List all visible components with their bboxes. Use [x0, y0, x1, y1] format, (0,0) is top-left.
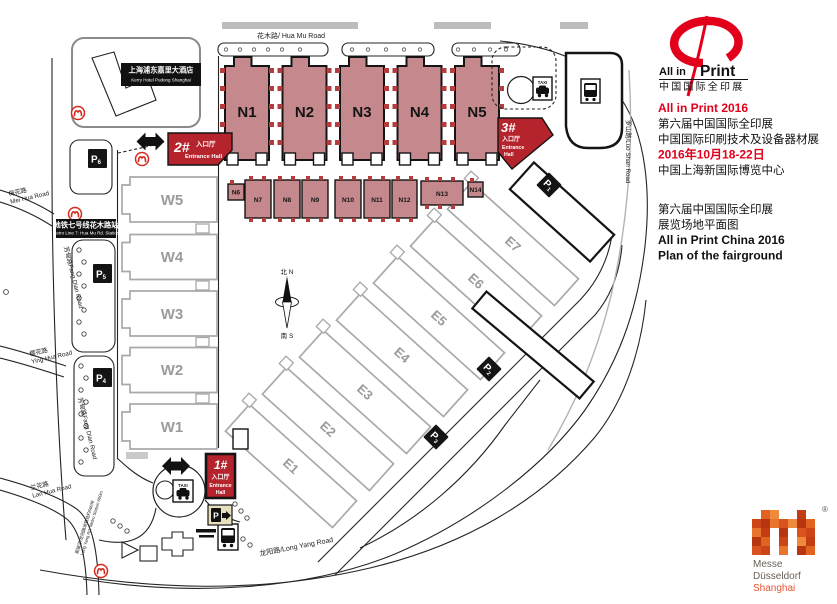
road-mei-hua-2 [0, 202, 52, 226]
label-mei-hua-road: 梅花路 Mei Hua Road [8, 181, 51, 206]
event-info: All in Print 2016 第六届中国国际全印展 中国国际印刷技术及设备… [658, 101, 819, 177]
entrance-3-en2: Hall [504, 152, 514, 158]
right-panel: All in Print 中国国际全印展 All in Print 2016 第… [658, 16, 828, 594]
southwest-buildings [122, 532, 193, 561]
road-plaza-link-1 [117, 458, 153, 483]
parking-sign-p: P [213, 511, 219, 521]
hall-n1-label: N1 [237, 104, 256, 121]
bus-bay [218, 43, 328, 56]
hall-n3: N3 [338, 57, 387, 165]
w1-service-pad [126, 452, 148, 459]
hall-w2-label: W2 [161, 362, 184, 379]
event-title-en: All in Print 2016 [658, 101, 748, 115]
event-title-cn2: 中国国际印刷技术及设备器材展 [658, 132, 819, 146]
plan-title-cn2: 展览场地平面图 [658, 218, 739, 232]
plaza-inner-circle [156, 481, 174, 499]
hall-w5: W5 [122, 177, 217, 222]
entrance-3-en1: Entrance [502, 145, 524, 151]
road-median-bar [560, 22, 588, 29]
hall-n11-label: N11 [371, 197, 383, 204]
taxi-label: TAXI [178, 483, 187, 488]
hotel-name-en: Kerry Hotel Pudong Shanghai [131, 78, 191, 83]
hall-w1: W1 [122, 404, 217, 449]
bus-icon-south [196, 524, 238, 550]
compass-needle-south [283, 302, 292, 328]
w-hall-connector [196, 224, 209, 233]
hall-n8-label: N8 [283, 197, 292, 204]
compass: 北 N 南 S [276, 268, 299, 340]
messe-line2: Düsseldorf [753, 571, 801, 582]
triangle-building [122, 542, 138, 558]
road-median-bar [434, 22, 491, 29]
taxi-icon-northeast: TAXI [533, 77, 552, 100]
registered-mark: ® [822, 505, 828, 514]
all-in-print-logo: All in Print 中国国际全印展 [659, 16, 748, 96]
gate-booth [233, 429, 248, 449]
entrance-1: 1# 入口厅 Entrance Hall [206, 454, 235, 498]
hall-n2-label: N2 [295, 104, 314, 121]
parking-p5: P5 [93, 264, 112, 283]
messe-line1: Messe [753, 559, 783, 570]
hotel-block: 上海浦东嘉里大酒店 Kerry Hotel Pudong Shanghai [72, 38, 201, 127]
label-hua-mu-road: 花木路/ Hua Mu Road [257, 31, 325, 40]
hall-n5: N5 [453, 57, 502, 165]
transit-note: 距磁浮/龙阳路地铁站约600米 Long Yang Rd. Metro Stat… [73, 488, 104, 556]
hall-n2: N2 [280, 57, 329, 165]
label-fang-dian-road-1: 芳甸路Fang Dian Road [62, 246, 85, 310]
road-median-bar [222, 22, 358, 29]
road-lan-hua-2 [0, 490, 87, 595]
entrance-1-en2: Hall [216, 490, 226, 496]
hall-n9-label: N9 [311, 197, 320, 204]
hall-w3-label: W3 [161, 306, 184, 323]
logo-text-cn: 中国国际全印展 [659, 80, 744, 93]
entrance-1-en1: Entrance [209, 483, 231, 489]
hall-w4-label: W4 [161, 249, 184, 266]
label-ying-hua-road: 樱花路 Ying Hua Road [29, 341, 74, 366]
w-halls: W5 W4 W3 W2 W1 [122, 177, 217, 459]
metro-icon-longyang [95, 565, 108, 578]
label-luo-shan-road: 罗山路/Luo Shan Road [624, 120, 632, 184]
small-building [140, 546, 157, 561]
metro7-cn: 地铁七号线花木路站 [54, 221, 120, 230]
bus-platform [199, 535, 214, 538]
hall-n3-label: N3 [352, 104, 371, 121]
logo-swoosh [674, 21, 738, 63]
plan-title-en1: All in Print China 2016 [658, 233, 785, 247]
plan-title-cn1: 第六届中国国际全印展 [658, 202, 773, 216]
event-venue: 中国上海新国际博览中心 [658, 163, 785, 177]
hall-w3: W3 [122, 291, 217, 336]
messe-line3: Shanghai [753, 583, 795, 594]
plan-title: 第六届中国国际全印展 展览场地平面图 All in Print China 20… [658, 202, 785, 263]
taxi-icon-plaza: TAXI [173, 480, 193, 502]
hall-w4: W4 [122, 235, 217, 280]
parking-p4: P4 [93, 368, 112, 387]
entrance-2: 2# 入口厅 Entrance Hall [168, 133, 232, 165]
w-hall-connector [196, 394, 209, 403]
hall-w1-label: W1 [161, 419, 184, 436]
entrance-1-cn: 入口厅 [210, 473, 229, 481]
parking-lots [70, 140, 115, 476]
entrance-1-number: 1# [214, 458, 228, 472]
messe-mosaic-m-icon [752, 510, 815, 555]
compass-south-label: 南 S [281, 331, 294, 340]
logo-text-print: Print [700, 63, 735, 80]
hotel-name-cn: 上海浦东嘉里大酒店 [129, 66, 194, 75]
parking-direction-sign: P [208, 505, 232, 525]
entrance-3-cn: 入口厅 [501, 135, 520, 143]
compass-north-label: 北 N [281, 268, 294, 276]
hall-n13-label: N13 [436, 191, 448, 198]
hall-n12-label: N12 [399, 197, 411, 204]
metro7-label: 地铁七号线花木路站 Metro Line 7: Hua Mu Rd. Stati… [53, 219, 120, 238]
logo-text-allin: All in [659, 66, 686, 78]
hall-n7-label: N7 [254, 197, 263, 204]
entrance-2-en: Entrance Hall [185, 154, 222, 160]
fairground-plan: 上海浦东嘉里大酒店 Kerry Hotel Pudong Shanghai W5… [0, 0, 837, 599]
bus-icon-northeast [581, 79, 600, 103]
n-small-halls: N6 N7 N8 N9 N10 N11 N12 N13 N14 [228, 178, 483, 220]
hall-n4-label: N4 [410, 104, 430, 121]
entrance-3-number: 3# [501, 120, 516, 135]
event-dates: 2016年10月18-22日 [658, 147, 765, 162]
small-building [162, 532, 193, 556]
taxi-label: TAXI [538, 80, 547, 85]
hall-n6-label: N6 [232, 190, 241, 197]
entrance-2-cn: 入口厅 [195, 140, 216, 148]
label-long-yang-road: 龙阳路/Long Yang Road [259, 535, 334, 558]
metro-icon-line7 [69, 208, 82, 221]
messe-duesseldorf-logo: ® Messe Düsseldorf Shanghai [752, 505, 828, 594]
road-plaza-link-2 [99, 508, 156, 542]
metro-icon-hotel [72, 107, 85, 120]
hall-n10-label: N10 [342, 197, 354, 204]
w-hall-connector [196, 281, 209, 290]
event-title-cn1: 第六届中国国际全印展 [658, 117, 773, 131]
n-halls: N1 N2 N3 N4 N5 [223, 57, 502, 165]
metro-icon-entrance2 [136, 153, 149, 166]
compass-needle-north [283, 276, 292, 302]
hall-n5-label: N5 [467, 104, 486, 121]
bus-platform [196, 529, 216, 533]
taxi-loop [508, 77, 535, 104]
parking-p6: P6 [88, 149, 107, 168]
plan-title-en2: Plan of the fairground [658, 249, 783, 263]
hall-n14-label: N14 [470, 187, 482, 194]
hall-w5-label: W5 [161, 192, 184, 209]
hall-w2: W2 [122, 348, 217, 393]
bus-bay [452, 43, 520, 56]
entrance-3: 3# 入口厅 Entrance Hall [498, 118, 553, 169]
road-fang-dian-1 [52, 58, 66, 540]
metro7-en: Metro Line 7: Hua Mu Rd. Station [53, 231, 120, 236]
w-hall-connector [196, 338, 209, 347]
hall-n4: N4 [395, 57, 444, 165]
entrance-2-number: 2# [173, 139, 190, 155]
